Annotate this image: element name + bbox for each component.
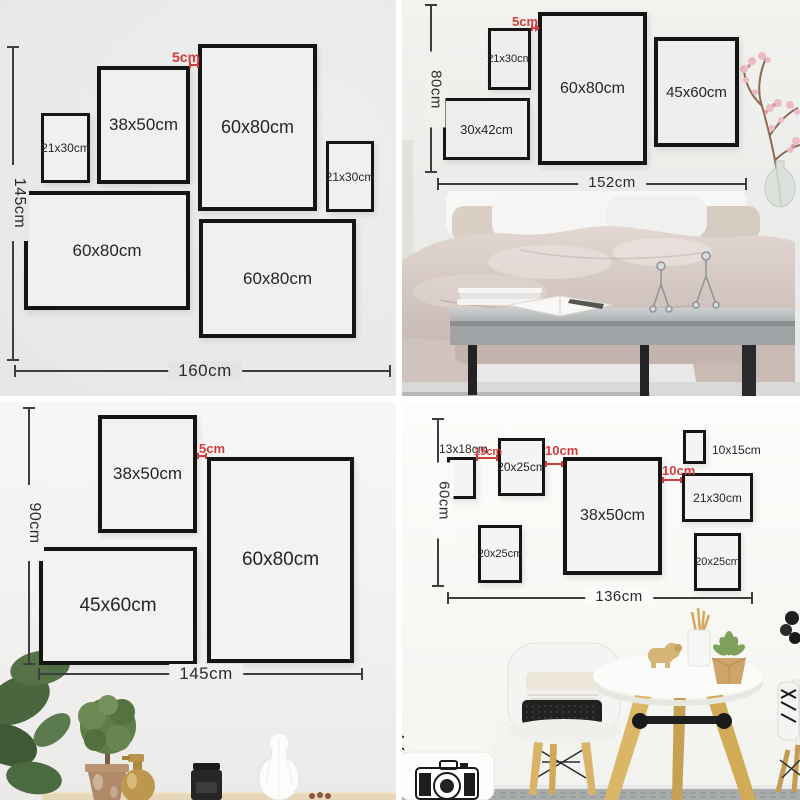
size-frame: 21x30cm [682,473,753,522]
size-frame: 60x80cm [207,457,354,663]
gap-label: 5cm [199,441,225,456]
frame-label: 20x25cm [695,556,740,568]
succulent-geometric-pot [711,631,747,684]
width-dimension-label: 160cm [168,361,242,381]
frame-label: 21x30cm [693,491,742,505]
brass-spray-bottle [121,754,155,800]
gallery-wall-size-guide: 21x30cm 38x50cm 60x80cm 21x30cm 60x80cm … [0,0,800,800]
cup-with-sticks [688,608,710,666]
quadrant-bottom-left: 38x50cm 60x80cm 45x60cm 90cm 145cm 5cm [0,400,400,800]
width-dimension-label: 136cm [585,588,653,605]
size-frame: 21x30cm [326,141,374,212]
frame-label: 20x25cm [497,460,546,474]
gap-line [545,463,563,465]
size-frame: 60x80cm [199,219,356,338]
blossom-branch [740,52,800,205]
bed-duvet [400,226,795,392]
rug [400,789,800,800]
frame-label: 38x50cm [109,115,178,135]
gap-line [476,457,498,459]
wood-table [42,792,400,800]
size-frame: 45x60cm [39,547,197,665]
frame-label: 60x80cm [560,80,625,98]
frame-label: 30x42cm [460,122,513,137]
frame-label: 45x60cm [79,595,156,617]
frame-label: 60x80cm [243,269,312,289]
floor [400,785,800,789]
size-frame: 38x50cm [98,415,197,533]
frame-label: 60x80cm [73,241,142,261]
quadrant-top-right: 21x30cm 60x80cm 45x60cm 30x42cm 80cm 152… [400,0,800,400]
bench [450,308,795,398]
headboard [446,191,746,233]
quadrant-divider-horizontal [0,396,800,402]
pillows [452,194,760,242]
partial-side-chair [778,611,800,792]
size-frame: 21x30cm [41,113,90,183]
size-frame: 45x60cm [654,37,739,147]
quadrant-top-left: 21x30cm 38x50cm 60x80cm 21x30cm 60x80cm … [0,0,400,400]
gap-label: 10cm [545,443,578,458]
white-sculptural-lamp [259,733,299,800]
width-dimension-label: 145cm [169,664,243,684]
size-frame: 20x25cm [478,525,522,583]
candle-holders [650,252,719,312]
frame-label: 38x50cm [113,464,182,484]
size-frame: 20x25cm [498,438,545,496]
frame-label: 20x25cm [478,548,523,560]
frame-label: 10x15cm [712,443,761,457]
size-frame: 38x50cm [97,66,190,184]
frame-label: 38x50cm [580,507,645,525]
size-frame: 38x50cm [563,457,662,575]
height-dimension-label: 90cm [24,485,44,561]
frame-label: 21x30cm [41,141,90,155]
size-frame: 60x80cm [198,44,317,211]
gap-line [662,479,682,481]
height-dimension-label: 145cm [9,165,29,241]
frame-label: 21x30cm [487,53,532,65]
size-frame: 60x80cm [538,12,647,165]
books [457,288,612,316]
white-chair [507,643,621,795]
small-pots [309,792,331,799]
frame-label: 60x80cm [221,117,294,138]
gap-label: 10cm [662,463,695,478]
wooden-elephant-toy [648,643,682,668]
black-candle-jar [191,763,222,800]
glass-vase [765,161,795,207]
height-dimension-label: 60cm [435,463,454,539]
frame-label: 21x30cm [326,170,375,184]
frame-label: 60x80cm [242,549,319,571]
size-frame: 20x25cm [694,533,741,591]
size-frame: 30x42cm [443,98,530,160]
camera-print-pillow [400,752,494,800]
quadrant-bottom-right: 13x18cm 20x25cm 38x50cm 10x15cm 21x30cm … [400,400,800,800]
size-frame [683,430,706,464]
potted-topiary [78,695,136,800]
size-frame: 21x30cm [488,28,531,90]
round-table [593,654,763,800]
frame-label: 45x60cm [666,84,727,101]
height-dimension-label: 80cm [427,52,446,128]
gap-line [189,64,199,66]
pillow-stack [400,702,494,800]
size-frame: 60x80cm [24,191,190,310]
width-dimension-label: 152cm [578,174,646,191]
gap-line [197,455,207,457]
gap-label: 5cm [172,49,200,65]
gap-line [531,27,539,29]
